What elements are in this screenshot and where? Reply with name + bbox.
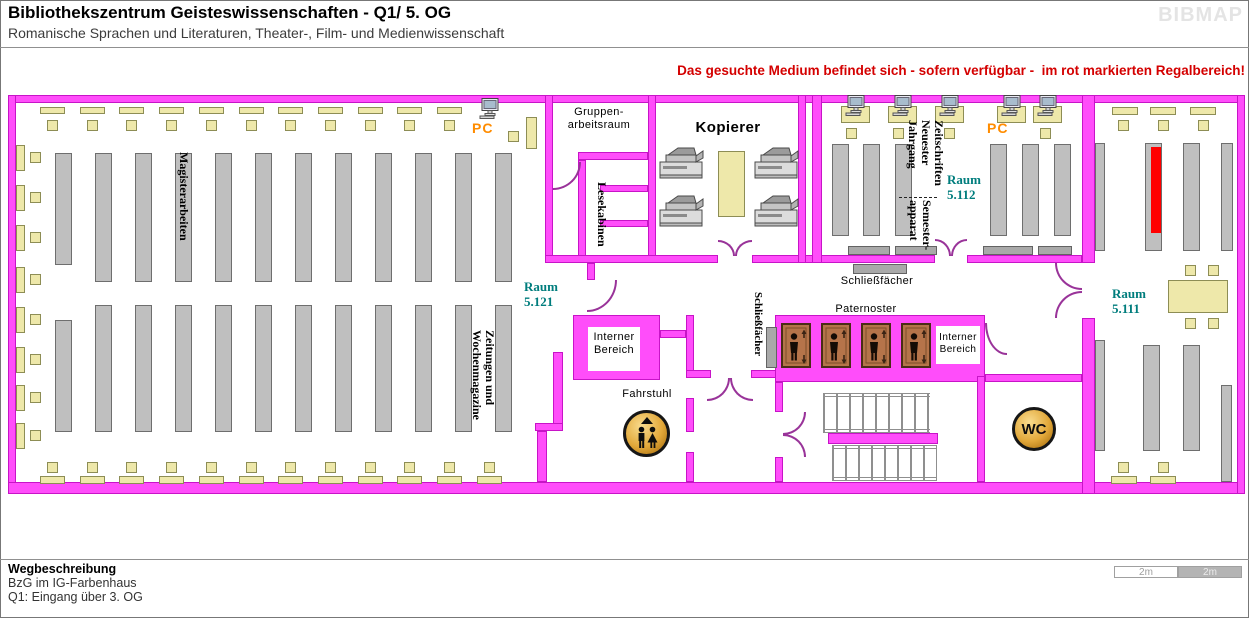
chair <box>1158 462 1169 473</box>
chair <box>484 462 495 473</box>
wall-segment <box>537 431 547 482</box>
paternoster-cabin-icon <box>781 323 811 368</box>
wall-segment <box>686 315 694 378</box>
wall-segment <box>8 482 1245 494</box>
chair <box>285 462 296 473</box>
wall-segment <box>977 376 985 482</box>
computer-icon <box>939 95 961 116</box>
desk <box>318 107 343 114</box>
label-lesekabinen: Lesekabinen <box>595 182 608 247</box>
chair <box>325 462 336 473</box>
bookshelf <box>255 153 272 282</box>
footer-heading: Wegbeschreibung <box>8 562 116 576</box>
bookshelf <box>55 153 72 265</box>
desk <box>239 107 264 114</box>
desk <box>16 307 25 333</box>
desk <box>159 107 184 114</box>
chair <box>30 354 41 365</box>
desk <box>16 145 25 171</box>
bookshelf <box>295 153 312 282</box>
wall-segment <box>1082 95 1095 263</box>
bibmap-page: Bibliothekszentrum Geisteswissenschaften… <box>0 0 1249 618</box>
chair <box>1158 120 1169 131</box>
label-pc-right: PC <box>987 120 1008 136</box>
chair <box>126 120 137 131</box>
chair <box>30 392 41 403</box>
desk <box>278 476 303 484</box>
label-fahrstuhl: Fahrstuhl <box>615 388 679 401</box>
wall-segment <box>535 423 563 431</box>
desk <box>40 476 65 484</box>
staircase-flight <box>832 445 937 481</box>
wall-segment <box>686 370 711 378</box>
chair <box>246 120 257 131</box>
desk <box>1112 107 1138 115</box>
wall-segment <box>587 263 595 280</box>
chair <box>846 128 857 139</box>
desk <box>1190 107 1216 115</box>
bookshelf <box>415 153 432 282</box>
door-arc <box>553 162 581 190</box>
wall-segment <box>660 330 686 338</box>
label-pc-left: PC <box>472 120 493 136</box>
desk <box>278 107 303 114</box>
bookshelf <box>375 305 392 432</box>
desk <box>1111 476 1137 484</box>
desk <box>437 476 462 484</box>
bookshelf <box>1143 345 1160 451</box>
chair <box>30 152 41 163</box>
label-schliessfaecher-flur: Schließfächer <box>751 292 764 356</box>
door-arc <box>783 434 806 457</box>
desk <box>40 107 65 114</box>
computer-icon <box>1037 95 1059 116</box>
desk <box>199 107 224 114</box>
desk <box>119 476 144 484</box>
wall-segment <box>775 382 783 412</box>
wall-segment <box>775 457 783 482</box>
desk <box>16 267 25 293</box>
bookshelf <box>1095 340 1105 451</box>
chair <box>365 462 376 473</box>
chair <box>1185 318 1196 329</box>
chair <box>285 120 296 131</box>
highlighted-shelf-marker <box>1151 147 1161 233</box>
floor-plan <box>0 0 1249 618</box>
desk <box>318 476 343 484</box>
label-zeitungen: Zeitungen und Wochenmagazine <box>470 330 496 420</box>
bookshelf <box>990 144 1007 236</box>
chair <box>325 120 336 131</box>
bookshelf <box>335 305 352 432</box>
chair <box>1208 318 1219 329</box>
footer-line1: BzG im IG-Farbenhaus <box>8 576 137 590</box>
copier-icon <box>658 146 704 180</box>
locker-block <box>853 264 907 274</box>
bookshelf <box>255 305 272 432</box>
door-arc <box>707 378 730 401</box>
chair <box>404 120 415 131</box>
chair <box>30 314 41 325</box>
wc-label: WC <box>1022 421 1047 438</box>
desk <box>358 476 383 484</box>
locker-block <box>1038 246 1072 255</box>
chair <box>365 120 376 131</box>
desk <box>159 476 184 484</box>
label-raum-5111: Raum 5.111 <box>1112 286 1146 316</box>
bookshelf <box>1022 144 1039 236</box>
locker-block <box>766 327 777 368</box>
chair <box>47 462 58 473</box>
paternoster-cabin-icon <box>901 323 931 368</box>
desk <box>80 107 105 114</box>
label-raum-5112: Raum 5.112 <box>947 172 981 202</box>
chair <box>47 120 58 131</box>
bookshelf <box>1183 345 1200 451</box>
wall-segment <box>967 255 1082 263</box>
bookshelf <box>135 153 152 282</box>
scale-segment-white: 2m <box>1114 566 1178 578</box>
chair <box>30 192 41 203</box>
label-magisterarbeiten: Magisterarbeiten <box>177 152 190 241</box>
desk <box>477 476 502 484</box>
chair <box>508 131 519 142</box>
bookshelf <box>1183 143 1200 251</box>
wall-segment <box>812 95 822 263</box>
chair <box>1208 265 1219 276</box>
bookshelf <box>495 305 512 432</box>
wall-segment <box>8 95 1245 103</box>
label-zeitschriften: Zeitschriften Neuester Jahrgang <box>906 120 945 186</box>
chair <box>1198 120 1209 131</box>
bookshelf <box>1221 385 1232 482</box>
chair <box>444 120 455 131</box>
desk <box>358 107 383 114</box>
footer-divider <box>0 559 1249 560</box>
bookshelf <box>455 153 472 282</box>
desk <box>16 385 25 411</box>
desk <box>119 107 144 114</box>
bookshelf <box>1221 143 1233 251</box>
wall-segment <box>828 433 938 444</box>
paternoster-cabin-icon <box>821 323 851 368</box>
desk <box>437 107 462 114</box>
chair <box>893 128 904 139</box>
wall-segment <box>578 152 648 160</box>
chair <box>166 120 177 131</box>
wall-segment <box>1082 318 1095 494</box>
label-gruppenarbeitsraum: Gruppen- arbeitsraum <box>551 106 647 132</box>
desk <box>199 476 224 484</box>
bookshelf <box>495 153 512 282</box>
bookshelf <box>375 153 392 282</box>
chair <box>30 274 41 285</box>
label-schliessfaecher-oben: Schließfächer <box>836 275 918 288</box>
area-divider-dashed <box>899 197 937 199</box>
desk <box>16 185 25 211</box>
bookshelf <box>335 153 352 282</box>
desk <box>397 107 422 114</box>
bookshelf <box>415 305 432 432</box>
chair <box>166 462 177 473</box>
elevator-people-glyph <box>627 414 667 454</box>
wall-segment <box>648 95 656 263</box>
desk <box>1150 107 1176 115</box>
chair <box>206 120 217 131</box>
desk <box>16 347 25 373</box>
copier-icon <box>753 146 799 180</box>
wall-segment <box>545 255 718 263</box>
bookshelf <box>215 153 232 282</box>
desk <box>1150 476 1176 484</box>
chair <box>246 462 257 473</box>
chair <box>1040 128 1051 139</box>
bookshelf <box>295 305 312 432</box>
desk <box>239 476 264 484</box>
copier-icon <box>658 194 704 228</box>
chair <box>404 462 415 473</box>
door-arc <box>985 323 1007 355</box>
chair <box>1118 120 1129 131</box>
bookshelf <box>215 305 232 432</box>
chair <box>126 462 137 473</box>
wall-segment <box>686 398 694 432</box>
desk <box>1168 280 1228 313</box>
computer-icon <box>892 95 914 116</box>
bookshelf <box>95 153 112 282</box>
computer-icon <box>479 98 501 119</box>
label-interner-bereich-rechts: Interner Bereich <box>936 332 980 356</box>
wall-segment <box>798 95 806 263</box>
door-arc <box>730 378 753 401</box>
computer-icon <box>845 95 867 116</box>
door-arc <box>587 280 617 312</box>
locker-block <box>848 246 890 255</box>
bookshelf <box>1054 144 1071 236</box>
wall-segment <box>553 352 563 425</box>
door-arc <box>718 240 735 256</box>
wall-segment <box>578 160 586 263</box>
door-arc <box>1055 291 1082 318</box>
staircase-flight <box>823 393 930 433</box>
elevator-icon <box>623 410 670 457</box>
desk <box>80 476 105 484</box>
desk <box>397 476 422 484</box>
door-arc <box>951 239 967 256</box>
chair <box>30 232 41 243</box>
paternoster-cabin-icon <box>861 323 891 368</box>
label-semesterapparat: Semester- apparat <box>907 200 933 250</box>
chair <box>206 462 217 473</box>
bookshelf <box>832 144 849 236</box>
door-arc <box>935 239 951 256</box>
bookshelf <box>55 320 72 432</box>
locker-block <box>983 246 1033 255</box>
chair <box>30 430 41 441</box>
door-arc <box>783 412 806 435</box>
copier-icon <box>753 194 799 228</box>
label-interner-bereich-links: Interner Bereich <box>588 331 640 357</box>
label-raum-5121: Raum 5.121 <box>524 279 558 309</box>
footer-line2: Q1: Eingang über 3. OG <box>8 590 143 604</box>
wall-segment <box>985 374 1082 382</box>
door-arc <box>735 240 752 256</box>
desk <box>16 423 25 449</box>
wall-segment <box>686 452 694 482</box>
desk <box>718 151 745 217</box>
desk <box>526 117 537 149</box>
bookshelf <box>135 305 152 432</box>
desk <box>16 225 25 251</box>
bookshelf <box>1095 143 1105 251</box>
label-paternoster: Paternoster <box>824 303 908 316</box>
wall-segment <box>1237 95 1245 494</box>
door-arc <box>1055 263 1082 290</box>
wall-segment <box>752 255 935 263</box>
chair <box>1185 265 1196 276</box>
chair <box>444 462 455 473</box>
wc-icon: WC <box>1012 407 1056 451</box>
wall-segment <box>8 95 16 494</box>
label-kopierer: Kopierer <box>682 121 774 134</box>
chair <box>87 462 98 473</box>
bookshelf <box>175 305 192 432</box>
chair <box>87 120 98 131</box>
bookshelf <box>95 305 112 432</box>
chair <box>1118 462 1129 473</box>
computer-icon <box>1001 95 1023 116</box>
scale-segment-gray: 2m <box>1178 566 1242 578</box>
bookshelf <box>863 144 880 236</box>
